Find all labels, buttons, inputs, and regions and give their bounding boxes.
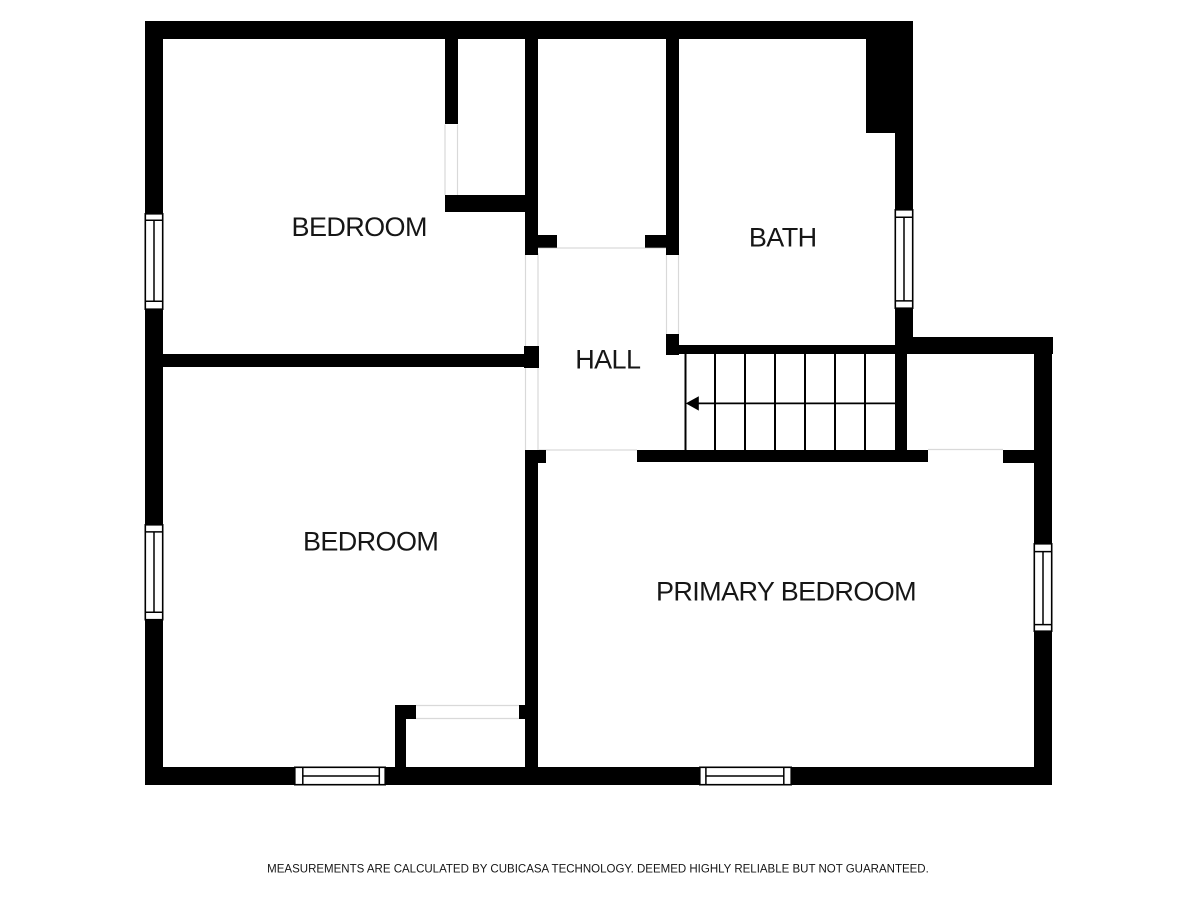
svg-text:BATH: BATH	[749, 223, 817, 253]
svg-text:PRIMARY BEDROOM: PRIMARY BEDROOM	[656, 576, 916, 606]
svg-text:BEDROOM: BEDROOM	[292, 212, 427, 242]
svg-text:BEDROOM: BEDROOM	[303, 527, 438, 557]
svg-text:MEASUREMENTS ARE CALCULATED BY: MEASUREMENTS ARE CALCULATED BY CUBICASA …	[267, 864, 929, 876]
svg-text:HALL: HALL	[575, 344, 641, 374]
